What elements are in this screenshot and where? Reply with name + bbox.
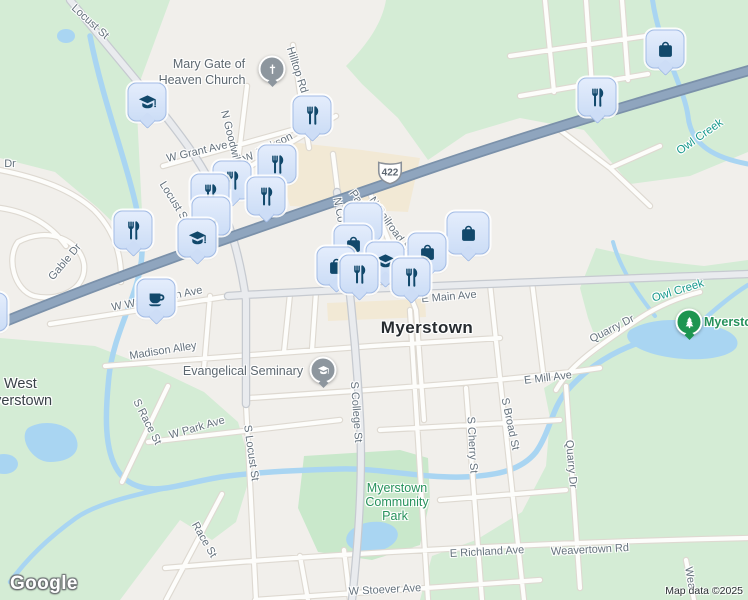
restaurant-marker[interactable]	[247, 177, 286, 216]
restaurant-icon	[586, 86, 608, 108]
google-logo[interactable]: Google	[10, 573, 78, 595]
base-map	[0, 0, 748, 600]
bag-marker[interactable]	[646, 30, 685, 69]
map-data-attribution: Map data ©2025	[665, 585, 743, 597]
route-number: 422	[377, 161, 404, 186]
park-pin[interactable]	[676, 309, 703, 336]
school-icon	[186, 227, 208, 249]
coffee-marker[interactable]	[137, 279, 176, 318]
map-canvas[interactable]: Locust StHilltop RdN Goodwill StW Grant …	[0, 0, 748, 600]
school-icon	[136, 91, 158, 113]
bag-marker[interactable]	[447, 212, 490, 255]
school-marker[interactable]	[128, 83, 167, 122]
restaurant-marker[interactable]	[392, 258, 431, 297]
school-icon	[316, 363, 330, 377]
school-marker[interactable]	[178, 219, 217, 258]
restaurant-marker[interactable]	[293, 96, 332, 135]
restaurant-icon	[255, 185, 277, 207]
church-icon	[265, 62, 279, 76]
restaurant-icon	[266, 153, 288, 175]
coffee-icon	[145, 287, 167, 309]
school-pin[interactable]	[310, 357, 337, 384]
restaurant-marker[interactable]	[578, 78, 617, 117]
restaurant-icon	[301, 104, 323, 126]
bag-icon	[457, 222, 479, 244]
bag-marker[interactable]	[0, 293, 8, 332]
route-422-shield: 422	[377, 160, 404, 185]
church-pin[interactable]	[259, 56, 286, 83]
restaurant-icon	[122, 219, 144, 241]
restaurant-marker[interactable]	[340, 255, 379, 294]
bag-icon	[654, 38, 676, 60]
restaurant-icon	[400, 266, 422, 288]
tree-icon	[682, 315, 696, 329]
restaurant-icon	[348, 263, 370, 285]
restaurant-marker[interactable]	[114, 211, 153, 250]
